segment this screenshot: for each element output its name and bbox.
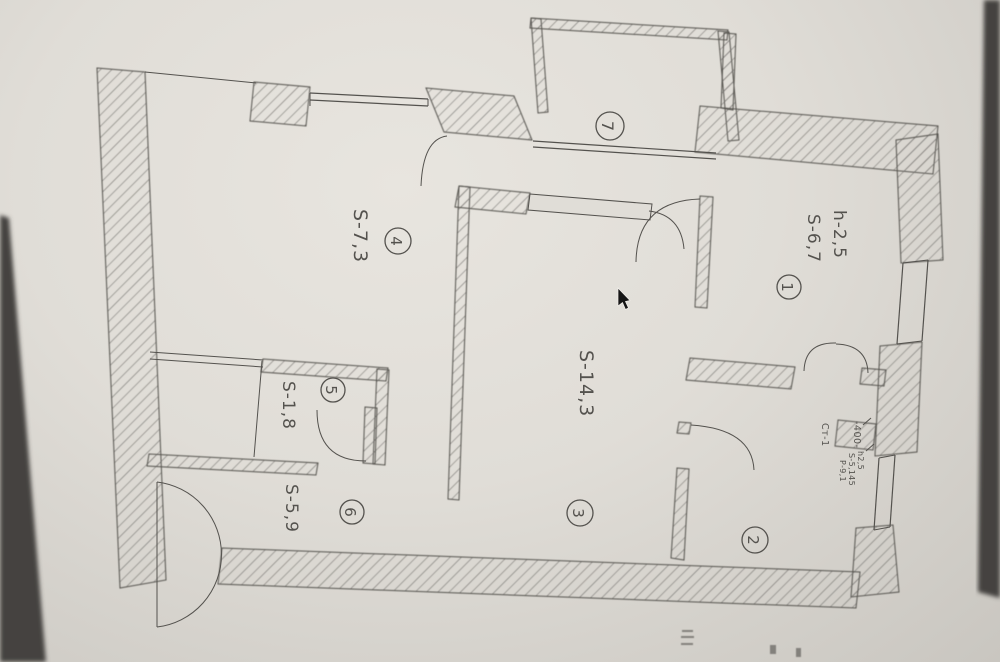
wall-room1-left (695, 196, 713, 308)
window-right-room1 (897, 260, 928, 344)
wall-left-exterior (97, 68, 166, 588)
floor-plan-svg: 1 2 3 4 5 6 7 h-2,5 S-6,7 S-14,3 S-7,3 S… (0, 0, 1000, 662)
double-door-vestibule (804, 343, 868, 373)
room1-number: 1 (778, 282, 796, 292)
room2-number: 2 (744, 535, 762, 545)
room3-number: 3 (569, 508, 587, 518)
closet-walls (150, 352, 263, 457)
balcony-wall-top (530, 18, 728, 40)
room1-height-label: h-2,5 (829, 210, 849, 259)
wall-vestibule (686, 358, 795, 389)
room6-area-label: S-5,9 (281, 484, 301, 533)
wall-room4-right (448, 186, 470, 500)
wall-top-line (145, 72, 256, 83)
wall-balcony-junction (721, 33, 736, 110)
footer-marks (681, 630, 801, 657)
window-right-room2 (874, 455, 895, 530)
walls (97, 18, 943, 608)
room1-area-label: S-6,7 (803, 214, 823, 263)
wall-room2-left-lower (671, 468, 689, 560)
room2-info-line-2: S-5,145 (847, 453, 856, 486)
balcony-door-unit (533, 141, 716, 159)
wall-room2-left-upper (677, 422, 691, 434)
wall-vestibule-pier-right (860, 368, 886, 386)
stack-label: Ст-1 (819, 423, 830, 447)
door-arc-entrance (157, 482, 221, 627)
room6-number: 6 (341, 507, 359, 517)
room-number-badges: 1 2 3 4 5 6 7 (321, 112, 801, 553)
wall-right-corner-block (896, 134, 943, 263)
wall-top-pier-a (250, 82, 310, 126)
window-top (310, 93, 428, 106)
room4-area-label: S-7,3 (349, 209, 371, 263)
door-arc-room2 (691, 425, 754, 470)
room2-info-line-1: h2,5 (856, 451, 865, 470)
room5-area-label: S-1,8 (278, 381, 298, 430)
dimension-label-400: -400- (851, 421, 862, 449)
wall-bottom-exterior (218, 548, 860, 608)
wall-top-pier-b (426, 88, 532, 140)
room3-area-label: S-14,3 (575, 350, 597, 417)
wall-room5-door-jamb (363, 407, 377, 464)
room2-info-line-3: Р-9,1 (838, 460, 847, 482)
door-arc-room4 (421, 136, 447, 186)
room7-number: 7 (598, 121, 617, 131)
wall-rooms56-divider (147, 454, 318, 475)
door-arc-room3-top (649, 211, 684, 249)
door-arc-room5 (317, 410, 366, 461)
mouse-cursor-icon (618, 288, 630, 310)
doorway-beam-room3 (528, 194, 652, 220)
wall-room5-top (261, 359, 388, 381)
room5-number: 5 (322, 385, 340, 395)
wall-right-mid-block (875, 342, 922, 456)
room4-number: 4 (387, 236, 405, 246)
balcony-wall-left (531, 18, 548, 113)
photographed-floor-plan: 1 2 3 4 5 6 7 h-2,5 S-6,7 S-14,3 S-7,3 S… (0, 0, 1000, 662)
